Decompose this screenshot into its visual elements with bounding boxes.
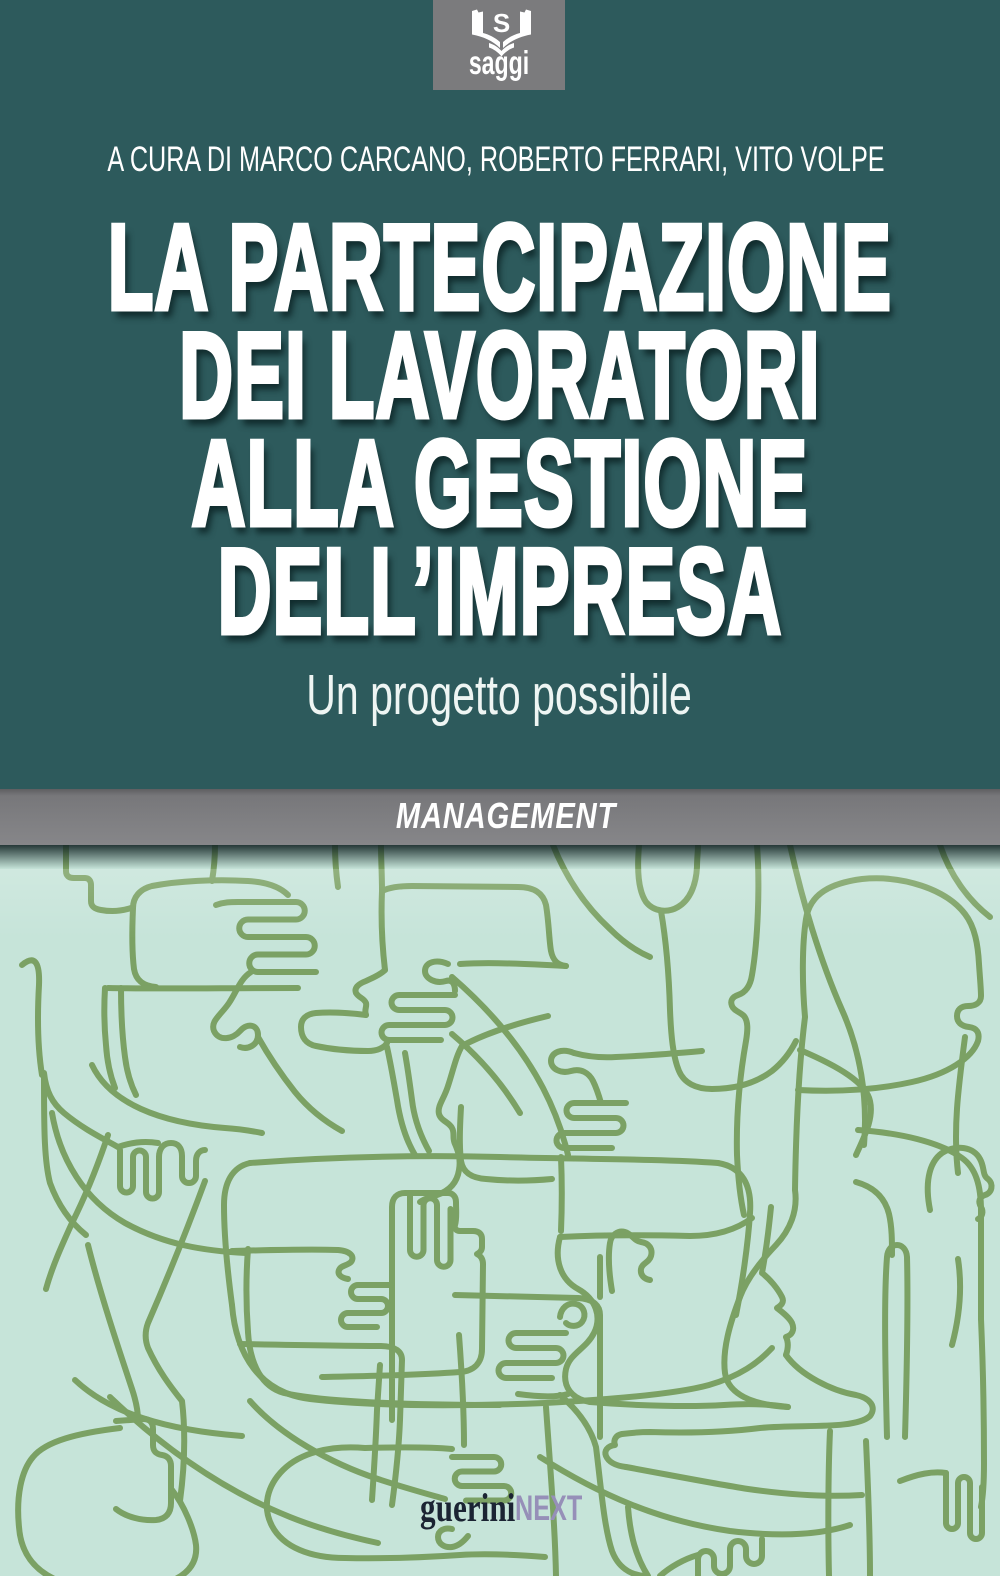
svg-text:S: S [493,8,510,38]
